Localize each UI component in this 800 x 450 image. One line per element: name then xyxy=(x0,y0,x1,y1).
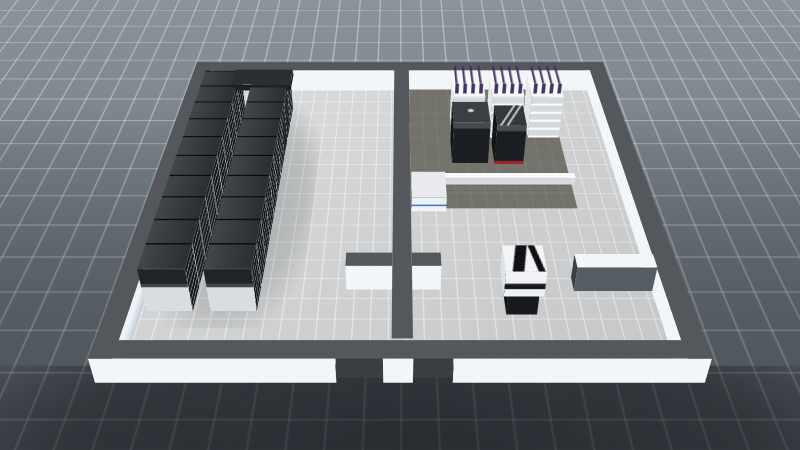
small-machine-stand-south[interactable] xyxy=(506,295,539,314)
stub-wall-right-top xyxy=(412,253,442,266)
stub-wall-right-south xyxy=(412,266,442,290)
door-right-south[interactable] xyxy=(413,357,453,378)
desk-blue-stripe-south[interactable] xyxy=(412,198,447,212)
partition-wall-right-top xyxy=(574,254,657,267)
tower-machine-large-top[interactable] xyxy=(452,102,491,123)
shelf-rack-3-south[interactable] xyxy=(528,97,564,138)
shelf-rack-3-items-top[interactable] xyxy=(530,66,563,83)
partition-wall-right-south xyxy=(574,267,658,291)
3d-viewport[interactable] xyxy=(0,0,800,450)
shelf-rack-2-items-south[interactable] xyxy=(494,84,523,94)
shelf-rack-2-items-top[interactable] xyxy=(492,66,523,83)
shelf-rack-1-items-south[interactable] xyxy=(455,84,484,94)
stub-wall-left-top xyxy=(345,253,392,266)
stub-wall-left-south xyxy=(345,266,392,290)
door-left-south[interactable] xyxy=(336,357,384,378)
front-wall-right-south xyxy=(453,359,712,383)
front-wall-left-south xyxy=(88,359,337,383)
shelf-rack-3-items-south[interactable] xyxy=(533,84,563,94)
small-machine-south[interactable] xyxy=(504,272,548,297)
cable-tray-bridge-top xyxy=(231,70,293,85)
server-rack-row-west-south[interactable] xyxy=(137,269,193,311)
small-machine-top[interactable] xyxy=(502,245,547,271)
tower-machine-red-slot-south[interactable] xyxy=(494,125,527,164)
tower-machine-red-slot-top[interactable] xyxy=(494,105,527,125)
front-wall-mid-south xyxy=(383,359,414,383)
tower-machine-large-south[interactable] xyxy=(452,123,491,163)
shelf-rack-1-items-top[interactable] xyxy=(454,66,484,83)
server-rack-row-east-south[interactable] xyxy=(203,269,256,311)
front-wall-cap-top xyxy=(88,340,712,358)
desk-blue-stripe-top[interactable] xyxy=(411,172,447,198)
scene-world xyxy=(0,109,800,412)
